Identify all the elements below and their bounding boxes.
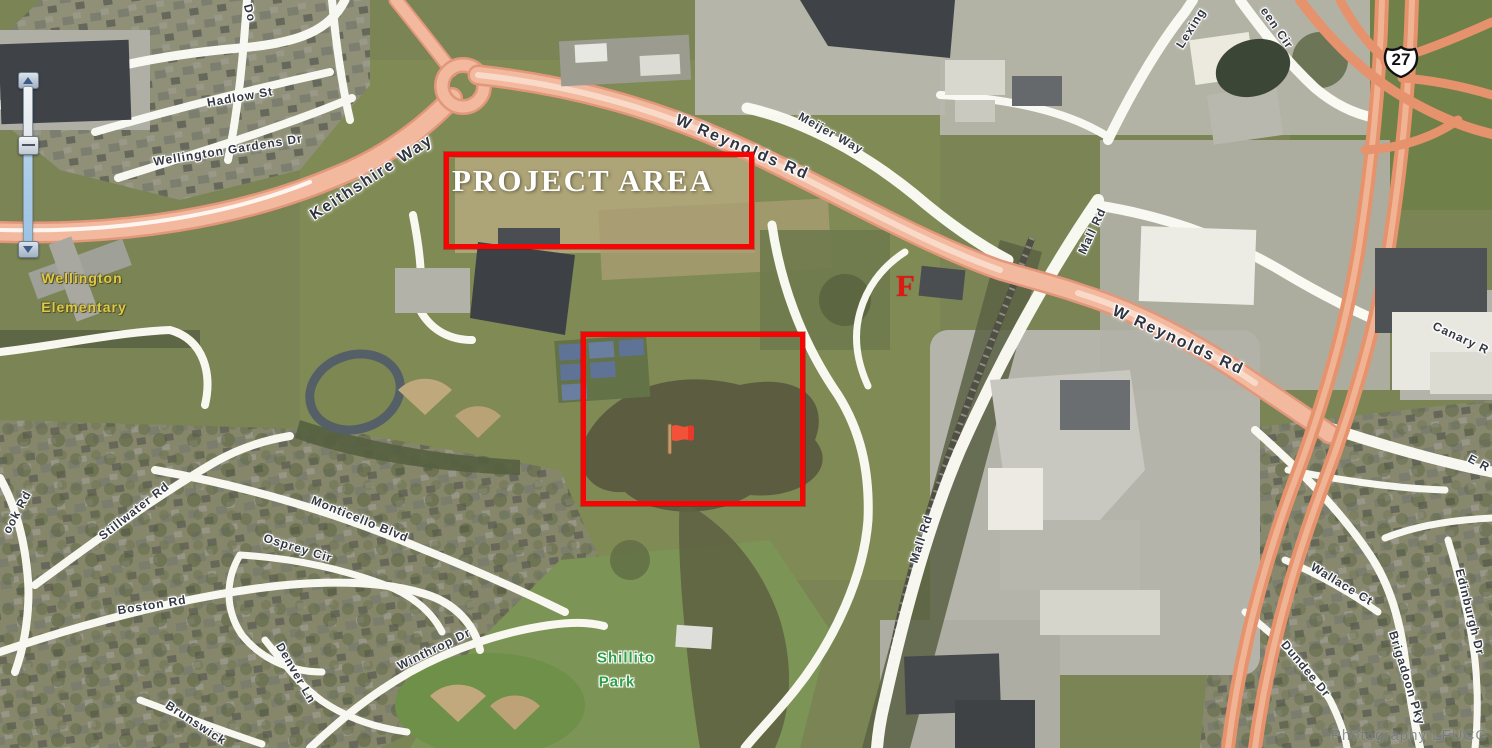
- f-marker: F: [896, 268, 915, 304]
- flag-marker-icon: [662, 420, 696, 463]
- flag-area-outline: [581, 332, 805, 506]
- project-area-label: PROJECT AREA: [452, 163, 714, 199]
- aerial-map-canvas[interactable]: DoHadlow StWellington Gardens DrKeithshi…: [0, 0, 1492, 748]
- chevron-down-icon: [23, 246, 33, 253]
- zoom-slider-track[interactable]: [23, 86, 33, 246]
- us-27-shield-number: 27: [1382, 50, 1420, 70]
- chevron-up-icon: [23, 77, 33, 84]
- us-27-shield: 27: [1382, 46, 1420, 78]
- zoom-control: [18, 72, 40, 260]
- zoom-out-button[interactable]: [18, 241, 39, 258]
- zoom-slider-handle[interactable]: [18, 136, 39, 155]
- imagery-credit-watermark: Photography LFUCG: [1331, 727, 1488, 744]
